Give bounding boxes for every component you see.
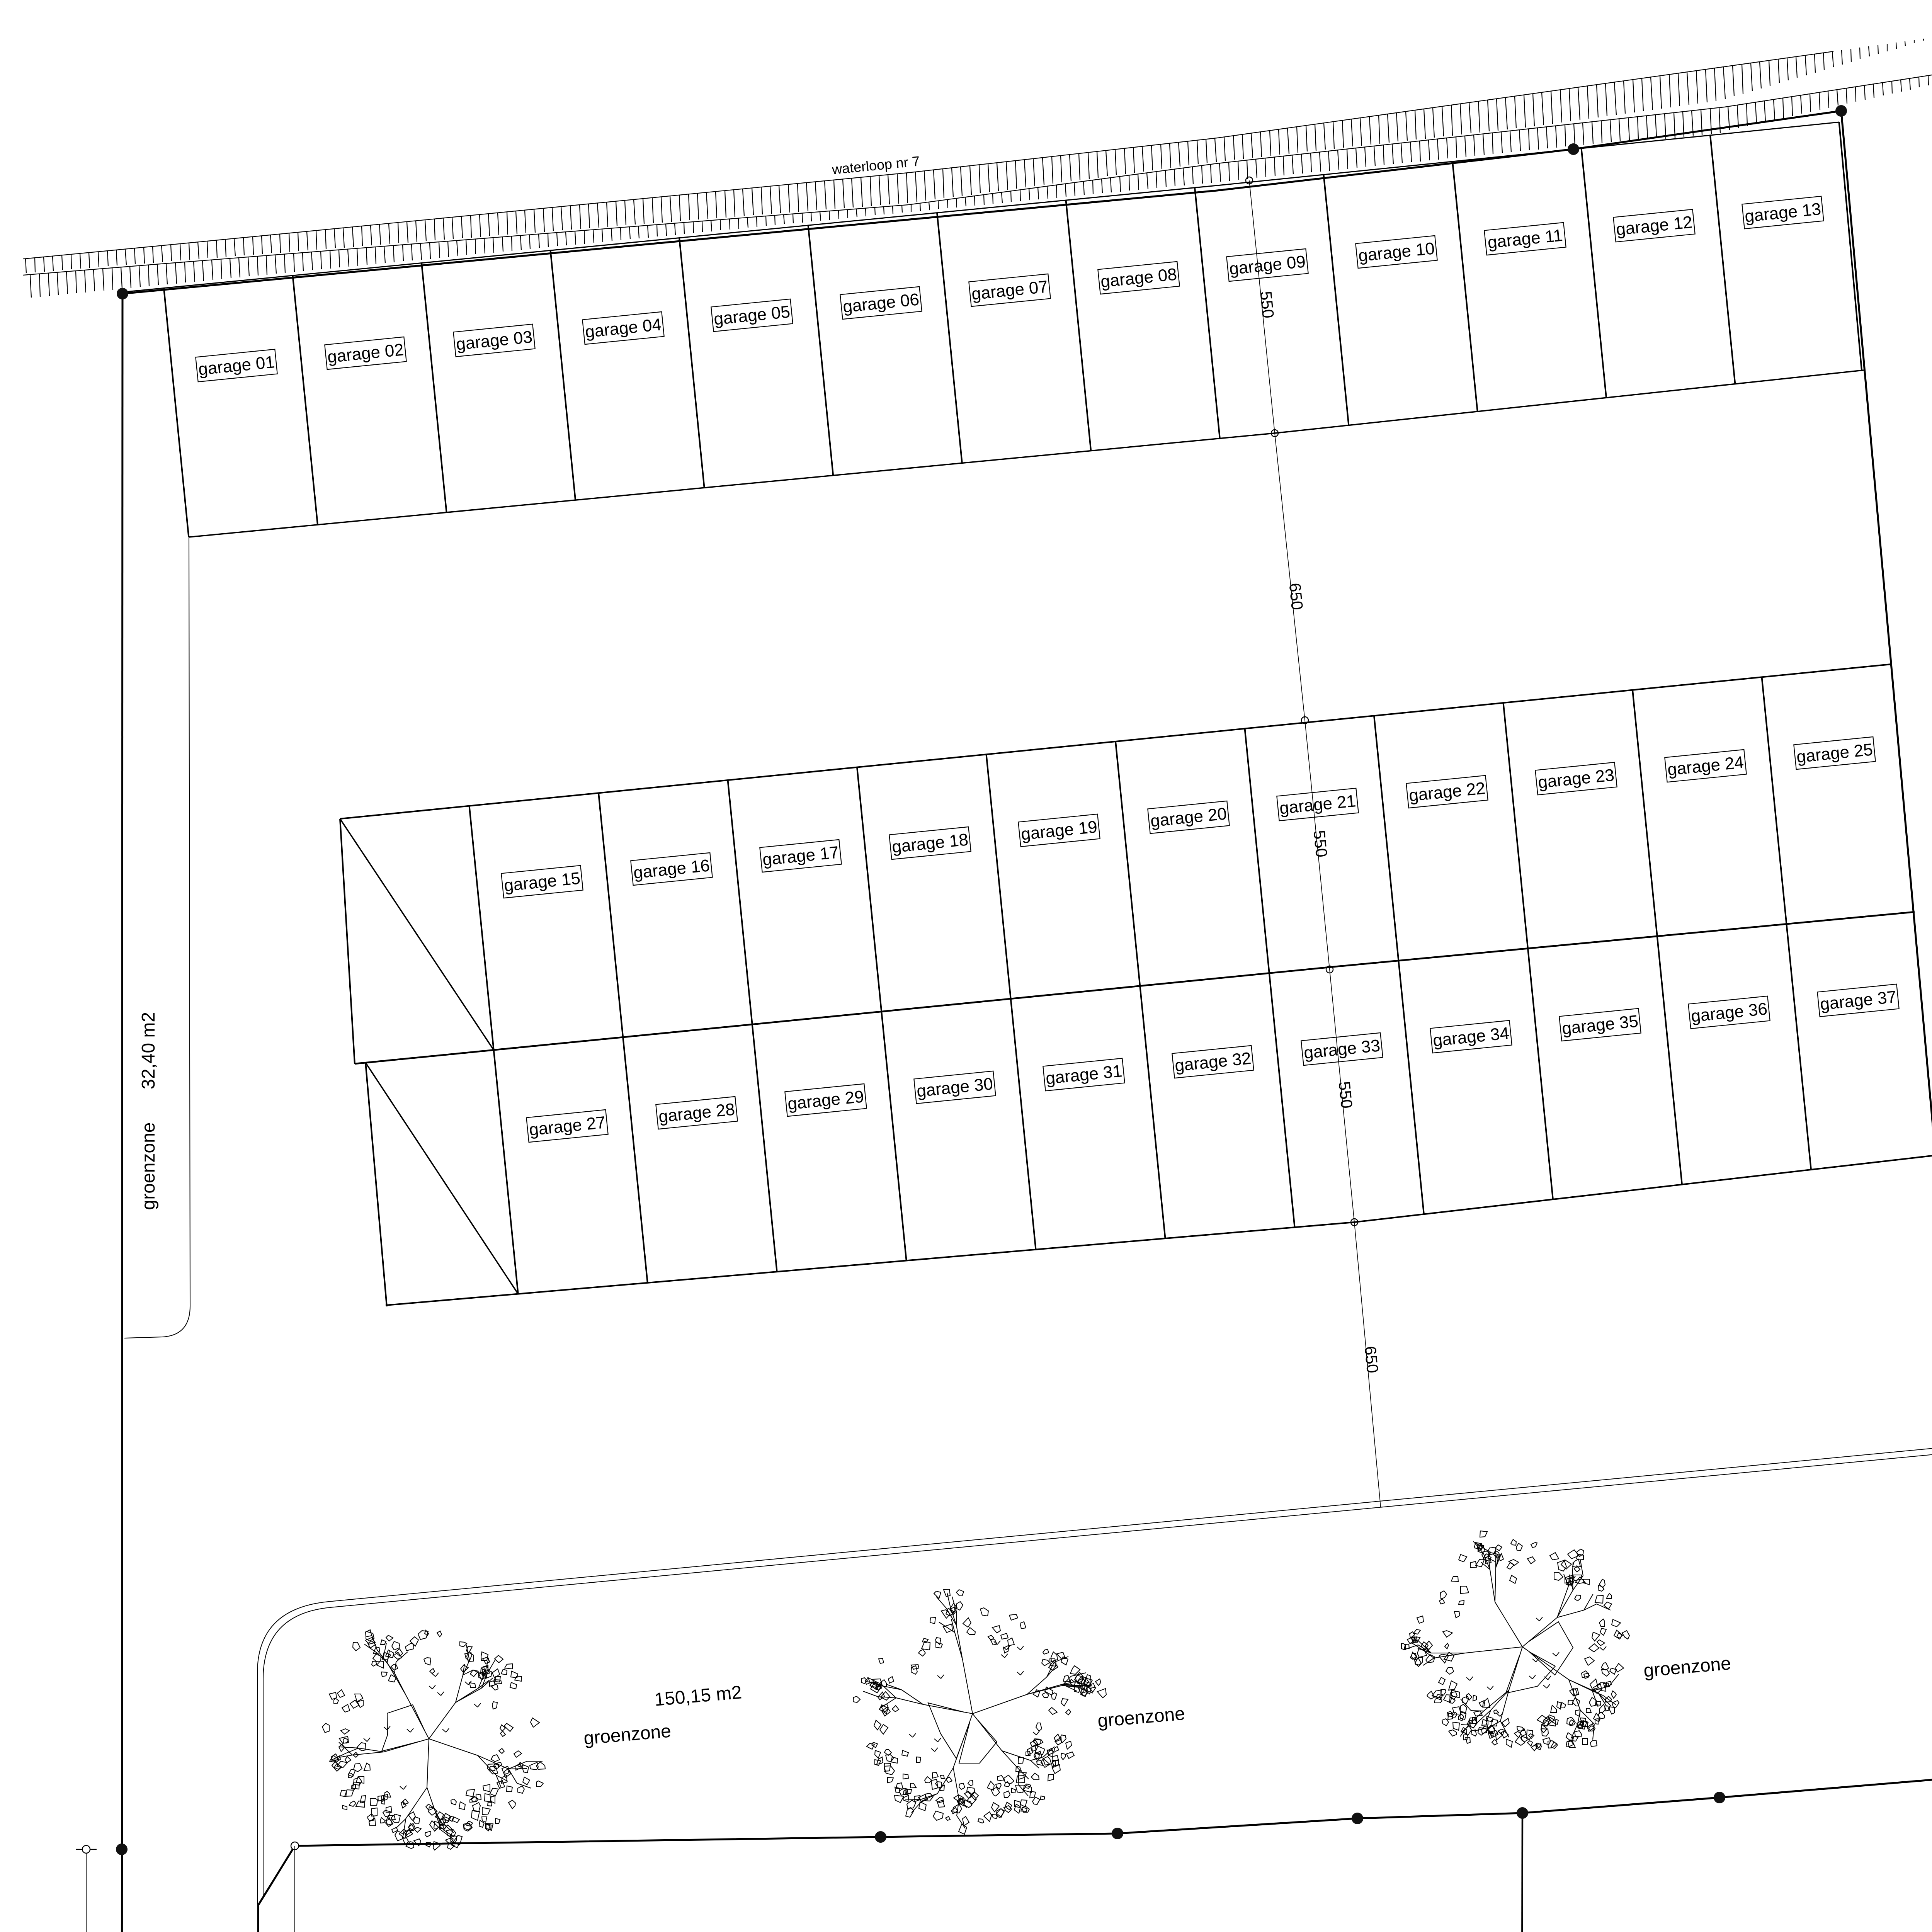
svg-text:650: 650 <box>1361 1345 1382 1374</box>
svg-text:32,40 m2: 32,40 m2 <box>138 1012 159 1089</box>
svg-text:550: 550 <box>1257 290 1278 319</box>
svg-text:groenzone: groenzone <box>138 1122 159 1210</box>
svg-text:550: 550 <box>1310 829 1331 858</box>
svg-text:650: 650 <box>1286 582 1307 611</box>
svg-text:550: 550 <box>1335 1080 1356 1109</box>
